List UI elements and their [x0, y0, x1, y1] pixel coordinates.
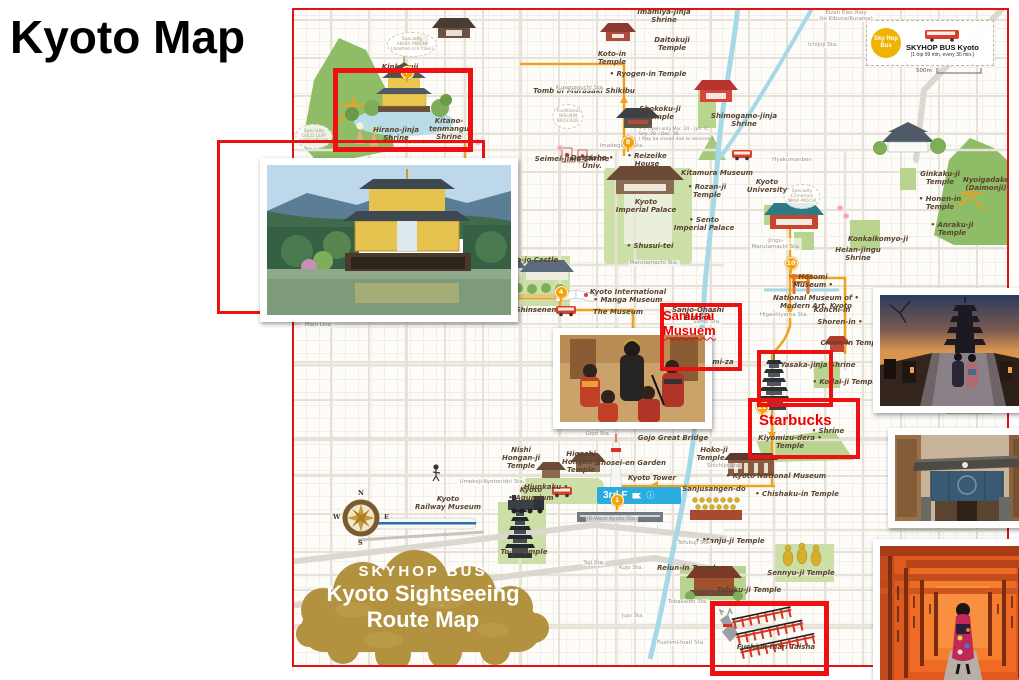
info-icon: ⓘ: [646, 490, 654, 501]
skyhop-badge: Sky HopBus: [871, 28, 901, 58]
scale-label: 500m: [916, 68, 932, 74]
photo-kinkakuji: [260, 158, 518, 322]
legend-subtitle: (1 trip 99 min, every 30 min.): [911, 52, 975, 58]
compass-rose: N E S W: [332, 489, 390, 547]
compass-n: N: [358, 489, 364, 497]
cloud-line-kyoto-sightseeing: Kyoto Sightseeing: [298, 581, 548, 607]
highlight-label-samurai-museum: Samurai Musuem: [663, 309, 716, 338]
highlight-box: [710, 601, 829, 676]
photo-starbucks-machiya: [888, 428, 1019, 528]
photo-yasaka-pagoda-dusk: [873, 288, 1019, 413]
bus-stop-4: 4: [555, 286, 568, 299]
cloud-line-skyhop-bus: SKYHOP BUS: [298, 563, 548, 580]
bus-stop-1: 1: [611, 494, 624, 507]
third-floor-ribbon: 3rd F ⓘ: [597, 487, 681, 504]
legend-bus-icon: [924, 29, 960, 42]
compass-e: E: [384, 513, 389, 521]
scale-bar: 500m: [916, 68, 982, 74]
map-legend: Sky HopBus SKYHOP BUS Kyoto (1 trip 99 m…: [866, 20, 994, 66]
cloud-line-route-map: Route Map: [298, 607, 548, 633]
bus-stop-8: 8: [622, 136, 635, 149]
flag-icon: [632, 493, 641, 499]
page-title: Kyoto Map: [10, 10, 245, 64]
highlight-label-starbucks: Starbucks: [759, 413, 832, 430]
legend-title: SKYHOP BUS Kyoto: [906, 43, 979, 52]
compass-s: S: [358, 539, 363, 547]
photo-fushimi-torii: [873, 539, 1019, 680]
compass-w: W: [333, 513, 340, 521]
bus-stop-10: 10: [785, 257, 798, 270]
